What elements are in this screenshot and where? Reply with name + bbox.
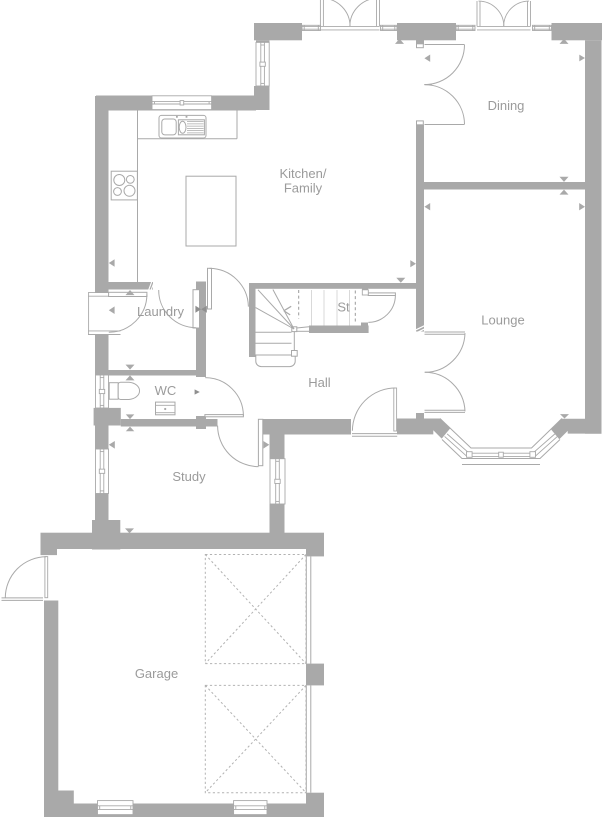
svg-text:Garage: Garage — [135, 666, 178, 681]
svg-text:WC: WC — [155, 383, 177, 398]
svg-text:Laundry: Laundry — [137, 304, 184, 319]
svg-text:Dining: Dining — [488, 98, 525, 113]
svg-text:Family: Family — [284, 181, 323, 196]
svg-text:Lounge: Lounge — [481, 313, 524, 328]
svg-text:Study: Study — [172, 469, 206, 484]
svg-text:St: St — [337, 300, 350, 315]
svg-text:Kitchen/: Kitchen/ — [280, 166, 327, 181]
svg-text:Hall: Hall — [308, 375, 331, 390]
